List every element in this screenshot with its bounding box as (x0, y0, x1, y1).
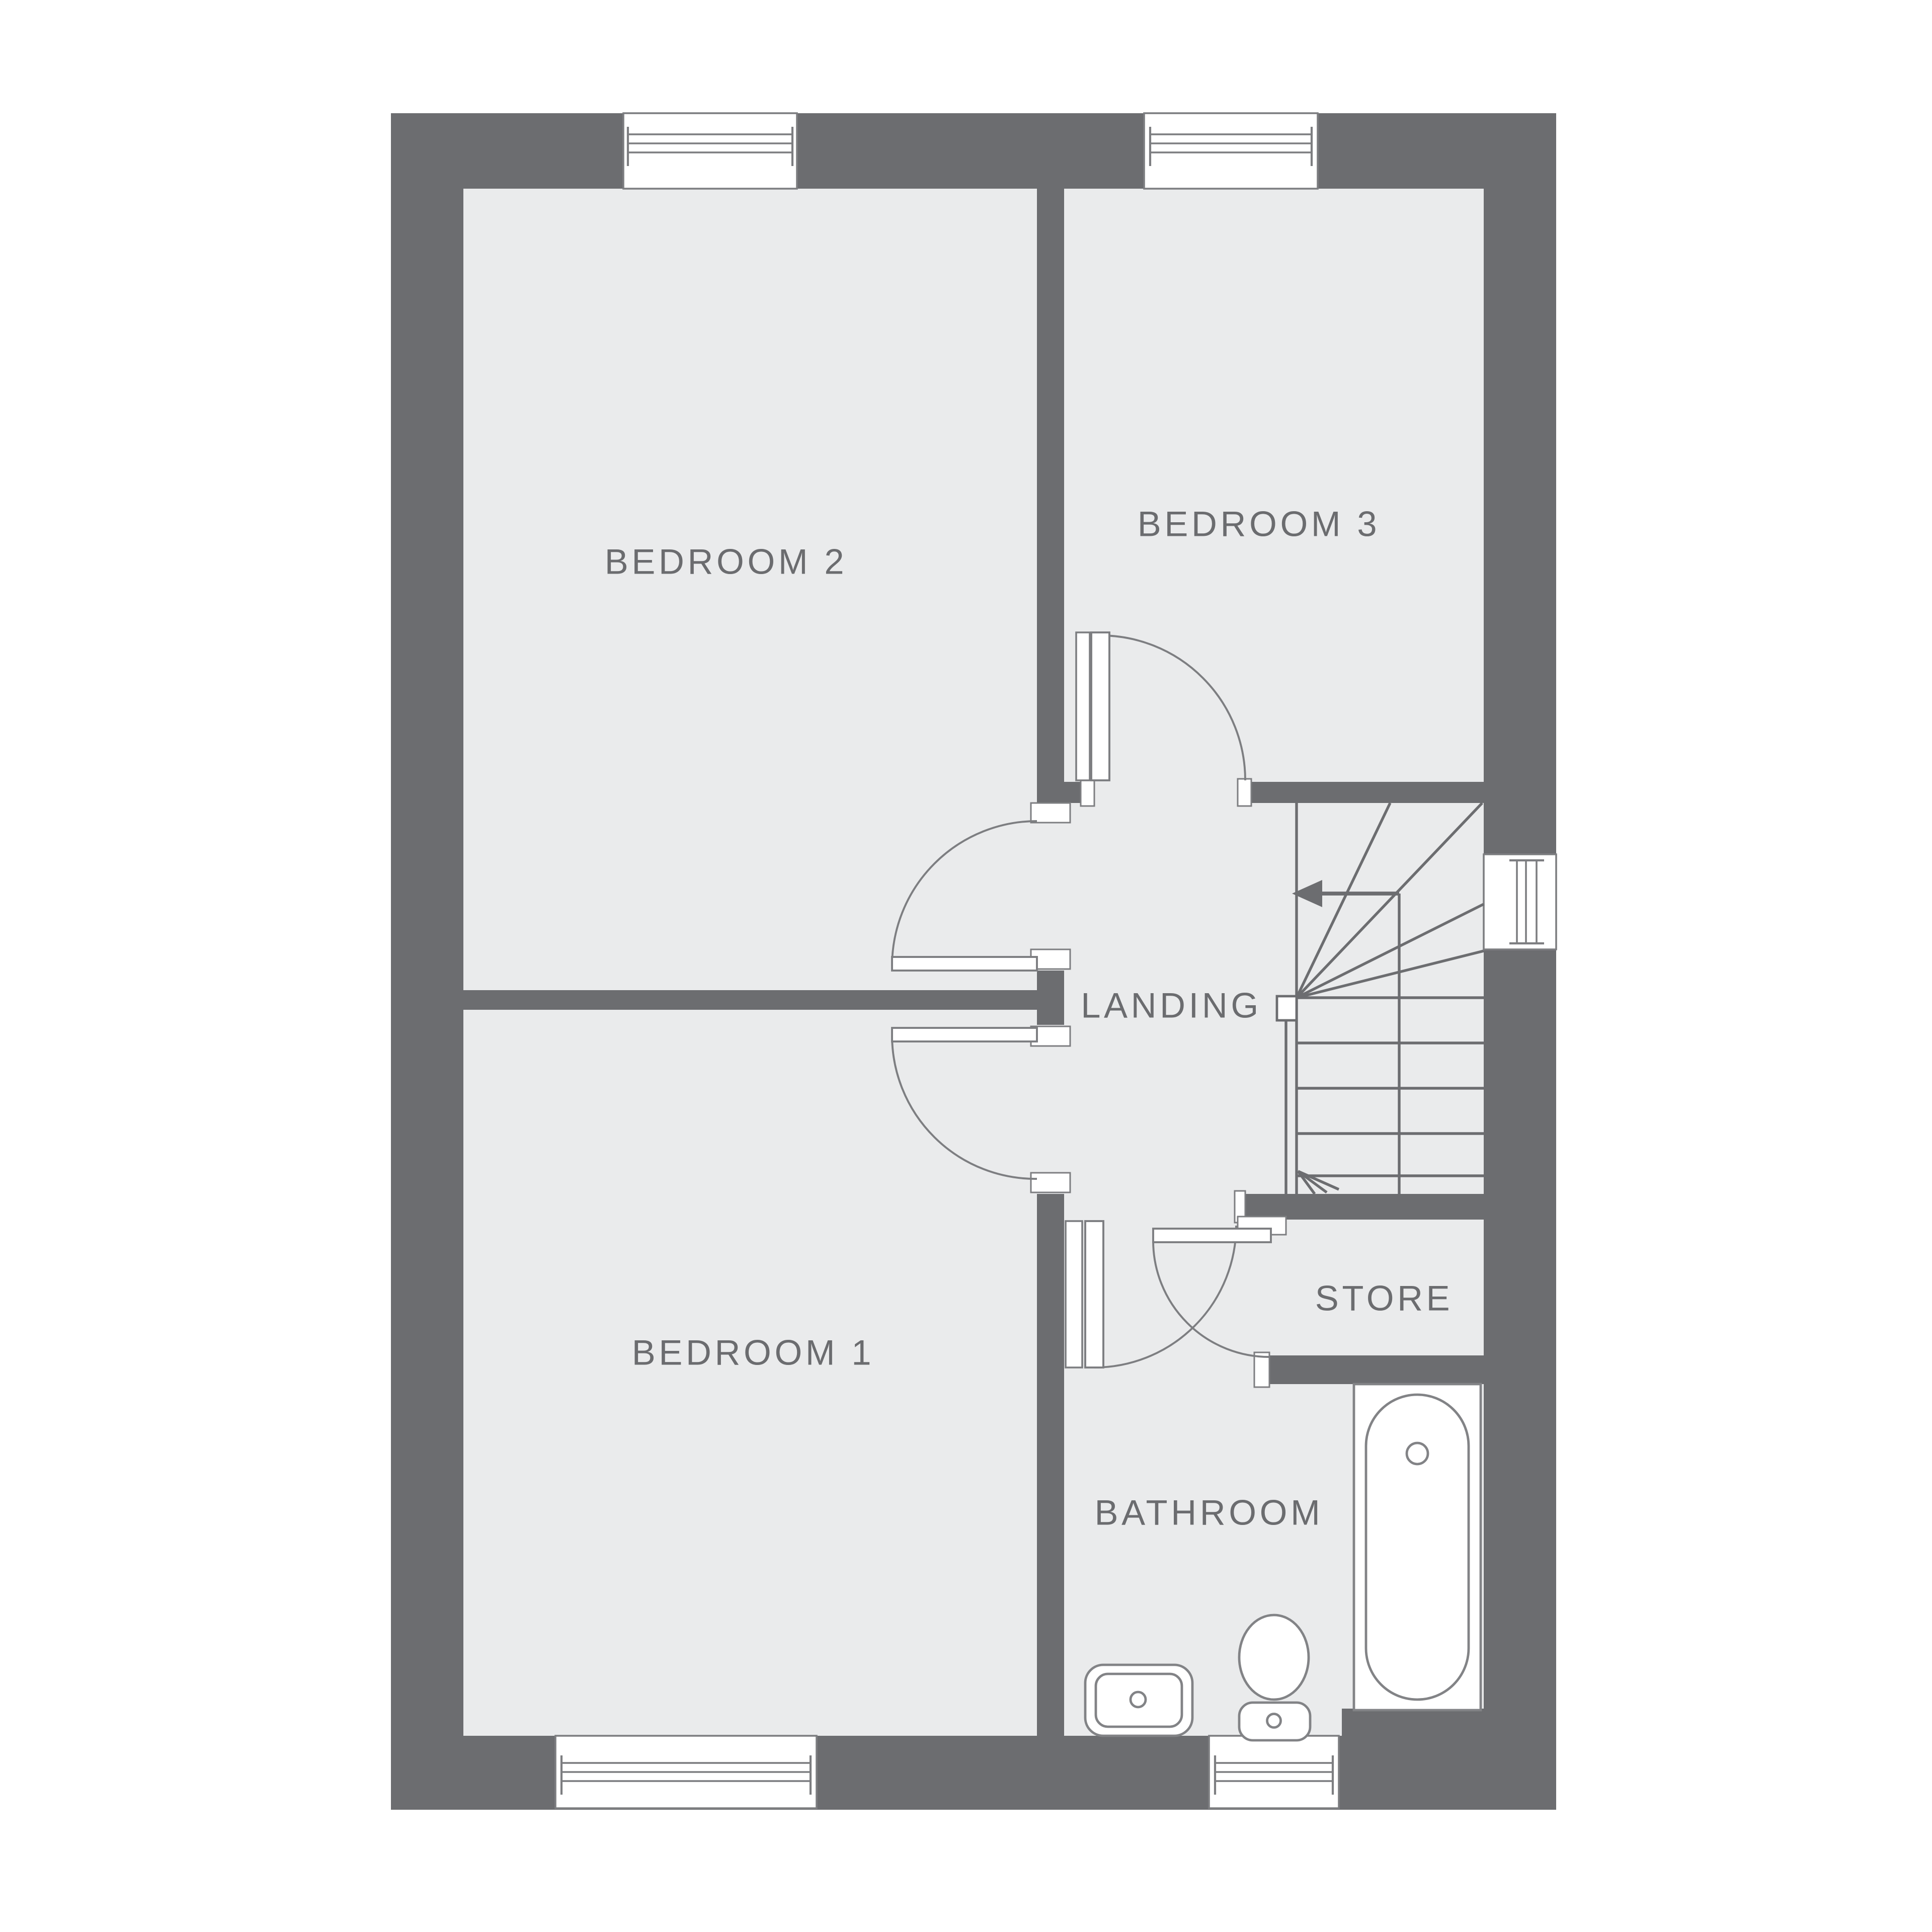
room-label-bedroom-2: BEDROOM 2 (605, 542, 847, 582)
wall-door-hinge-block (1037, 971, 1064, 1025)
bath-tap-icon (1407, 1443, 1428, 1464)
wall-bottom-right-chunk (1342, 1709, 1556, 1808)
jamb-bed3-door-right (1238, 779, 1251, 806)
door-leaf-store (1153, 1229, 1271, 1242)
room-label-bathroom: BATHROOM (1095, 1493, 1324, 1533)
bath-tub (1366, 1395, 1469, 1700)
wall-bed3-bottom (1251, 782, 1484, 803)
jamb-bed2-doorway-top (1031, 803, 1070, 823)
wall-bed1-landing (1037, 1194, 1064, 1736)
floor-plan-canvas: BEDROOM 2BEDROOM 3BEDROOM 1LANDINGSTOREB… (0, 0, 1932, 1932)
room-label-bedroom-3: BEDROOM 3 (1138, 504, 1380, 544)
wall-stairs-bottom (1241, 1194, 1484, 1220)
toilet-flush-button-icon (1267, 1714, 1281, 1728)
room-label-bedroom-1: BEDROOM 1 (632, 1333, 874, 1373)
door-leaf-bedroom-1 (892, 1028, 1037, 1041)
wall-store-bottom (1262, 1355, 1556, 1384)
wall-bed3-stub (1064, 782, 1081, 803)
door-leaf-bedroom-3 (1091, 632, 1109, 780)
door-leaf-bedroom-2 (892, 957, 1037, 971)
door-frame-bathroom (1066, 1221, 1082, 1367)
room-label-landing: LANDING (1081, 986, 1262, 1025)
stair-newel-post (1277, 996, 1297, 1020)
door-frame-bedroom-3 (1076, 632, 1090, 780)
wall-bed2-bed3-divider (1037, 189, 1064, 808)
toilet-bowl (1239, 1615, 1309, 1700)
sink-drain-icon (1131, 1692, 1146, 1707)
floor-plan-svg: BEDROOM 2BEDROOM 3BEDROOM 1LANDINGSTOREB… (0, 0, 1932, 1932)
wall-bed1-bed2-divider (463, 990, 1037, 1010)
jamb-bed1-doorway-bottom (1031, 1173, 1070, 1192)
door-leaf-bathroom (1085, 1221, 1103, 1367)
room-label-store: STORE (1315, 1278, 1454, 1318)
jamb-bed3-door-left (1081, 779, 1094, 806)
